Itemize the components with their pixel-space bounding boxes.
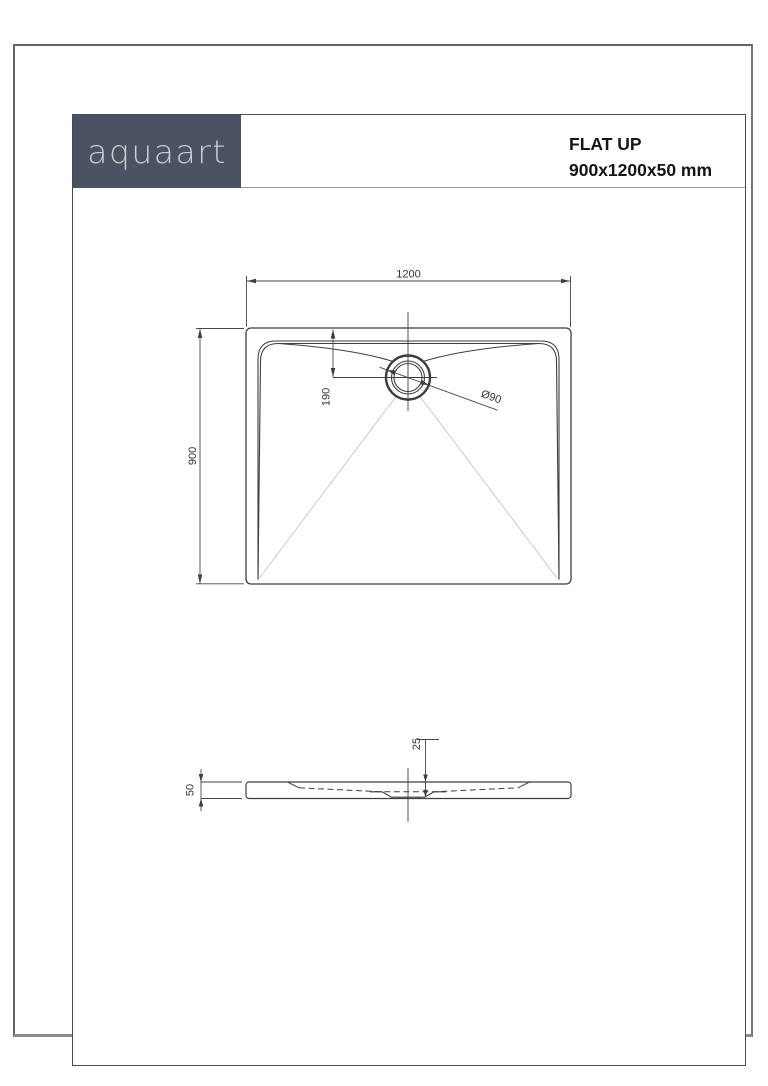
technical-drawing: 1200 900 190 Ø90 50 2 [0,0,768,1086]
plan-drain-offset-label: 190 [321,388,333,406]
plan-funnel-right [423,344,539,362]
plan-width-label: 1200 [396,269,420,281]
plan-drain-diameter-label: Ø90 [479,388,503,406]
section-view [246,768,571,822]
plan-funnel-left [279,344,394,362]
dim-1200 [247,276,571,327]
plan-dimensions [196,276,571,584]
dim-50 [199,769,242,811]
section-height-label: 50 [185,784,197,796]
plan-view [246,312,571,584]
section-depth-label: 25 [411,738,423,750]
drawing-sheet-page: { "header": { "brand": "aquaart", "produ… [0,0,768,1086]
section-dimensions [199,740,439,812]
plan-inner-rim-inner [258,344,559,580]
section-step-right [518,782,529,788]
plan-height-label: 900 [187,447,199,465]
section-profile-outline [246,782,571,799]
drain [333,312,437,411]
plan-inner-rim-outer [258,341,559,580]
plan-tray-outline [246,328,571,584]
section-step-left [288,782,299,788]
dim-900 [196,329,244,584]
dim-drain-diameter [380,367,498,410]
dim-190 [331,330,336,378]
plan-slope-lines [260,397,558,579]
